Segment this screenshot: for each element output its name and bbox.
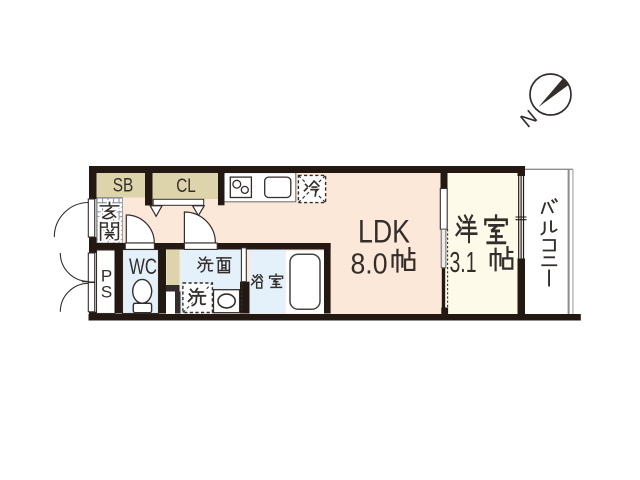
svg-text:LDK: LDK (358, 214, 410, 250)
svg-text:CL: CL (176, 176, 196, 197)
svg-text:WC: WC (129, 254, 157, 279)
svg-text:S: S (101, 283, 112, 302)
svg-text:SB: SB (113, 175, 134, 197)
svg-text:3.1: 3.1 (450, 247, 477, 279)
svg-text:8.0: 8.0 (351, 248, 388, 280)
